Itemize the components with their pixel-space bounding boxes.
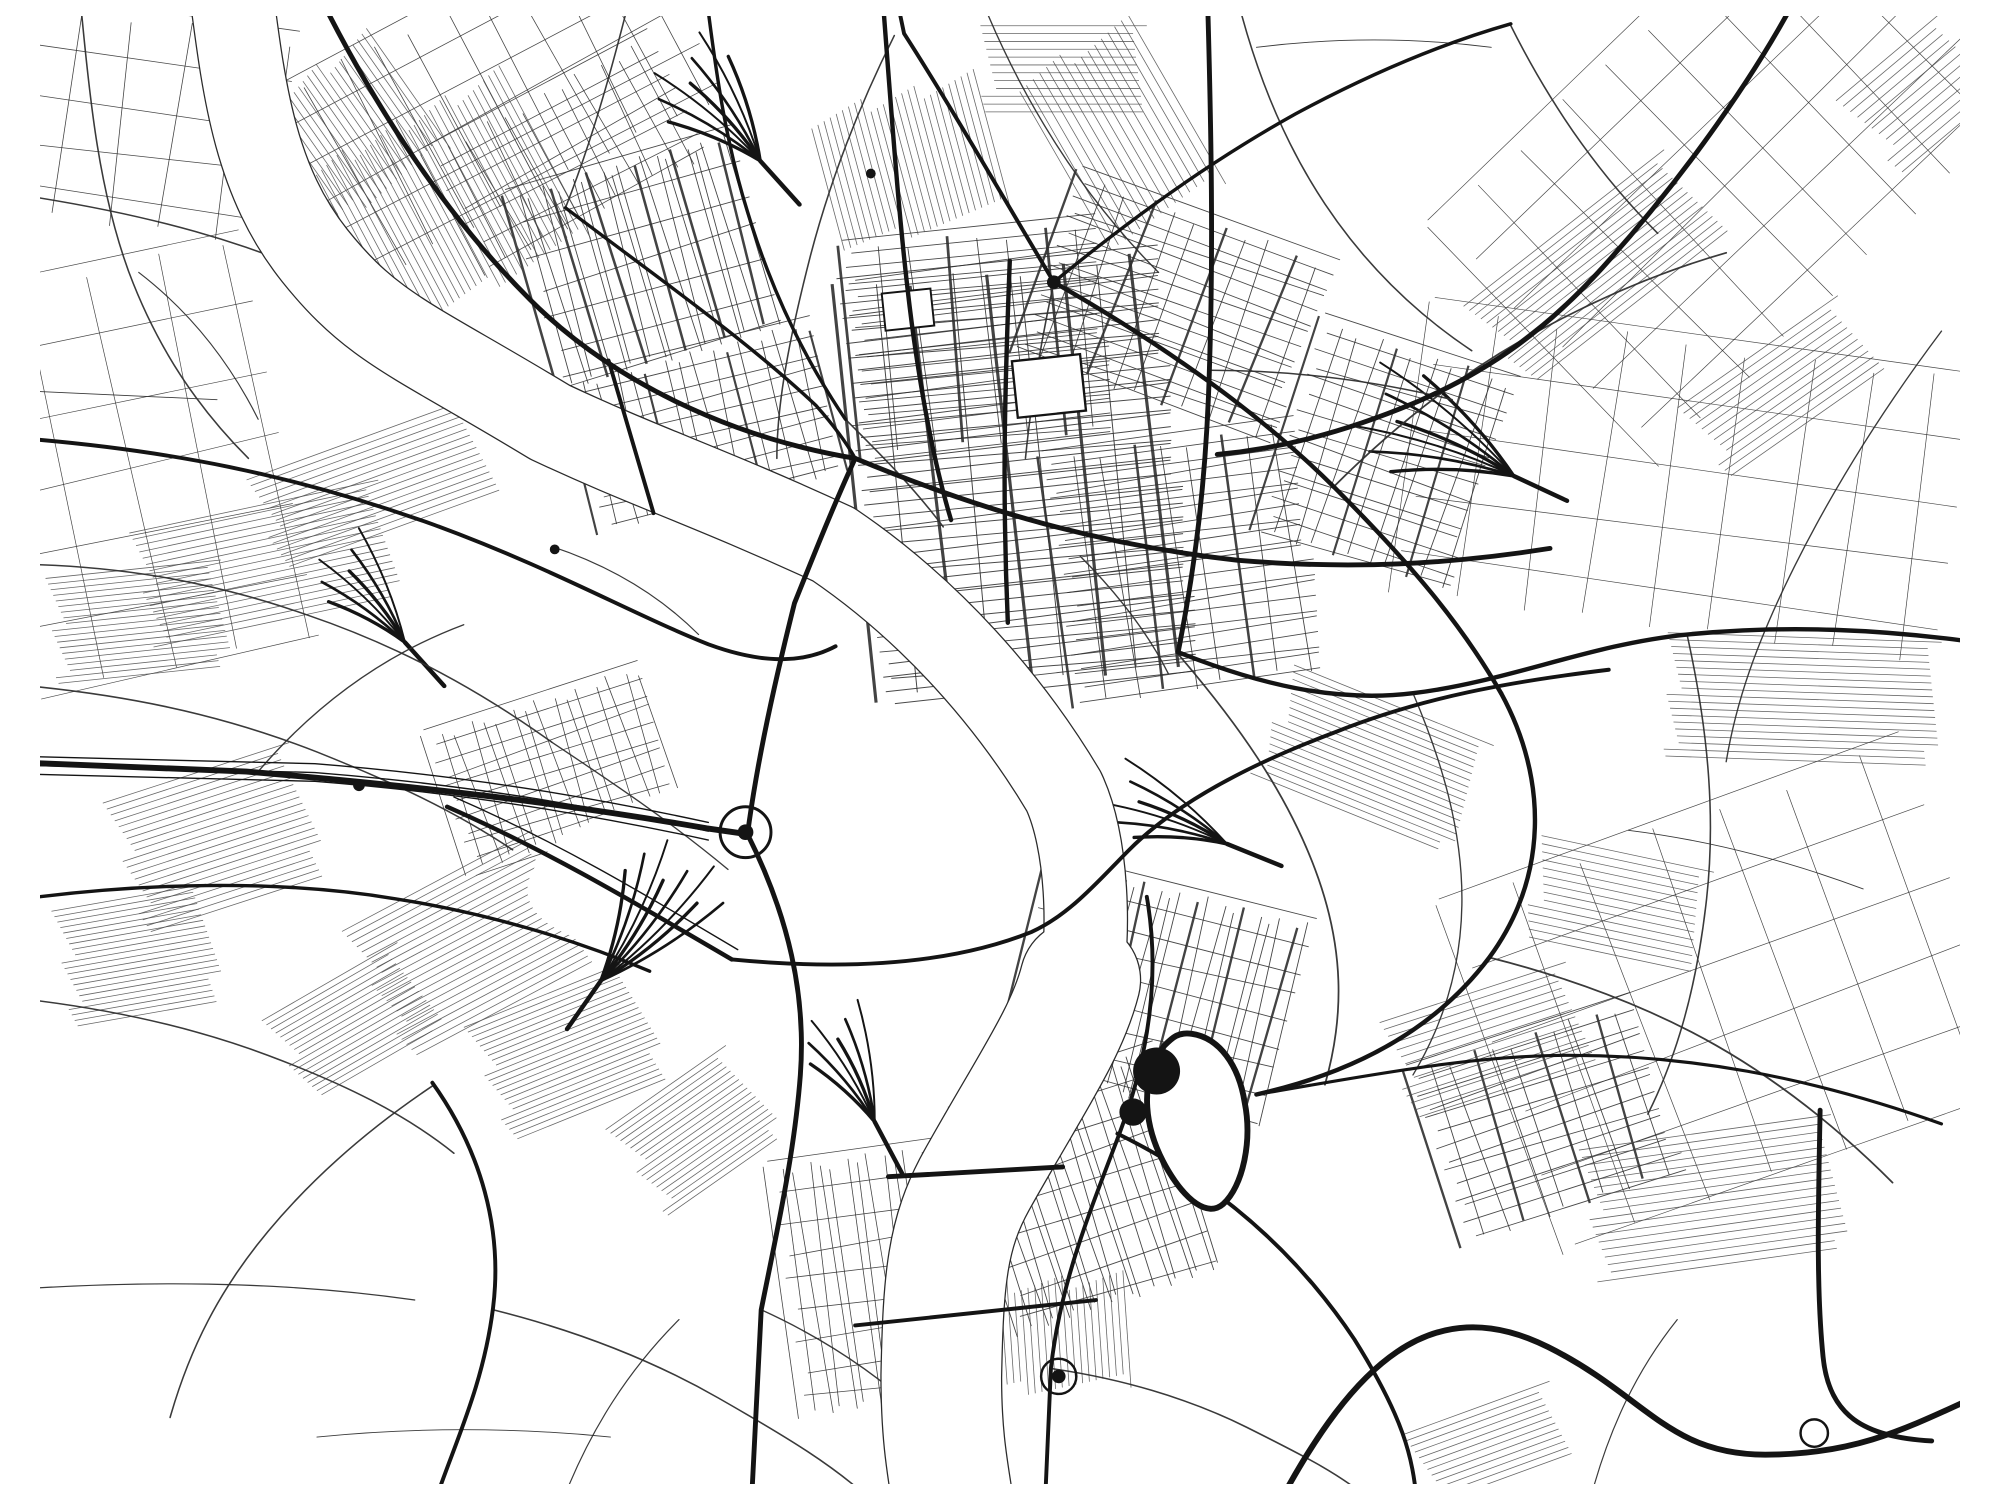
map-canvas bbox=[40, 16, 1960, 1484]
city-street-map bbox=[40, 16, 1960, 1484]
